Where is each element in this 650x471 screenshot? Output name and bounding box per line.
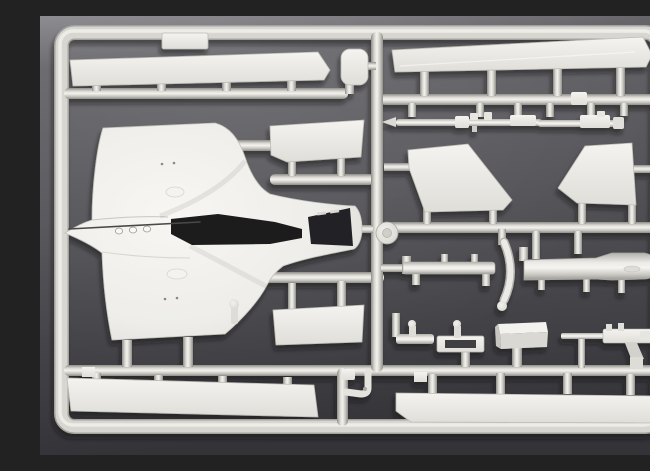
runner-vertical-center [371,32,383,372]
runner-top-left [64,88,348,99]
runner-bottom [64,365,650,376]
pod-part [341,49,368,85]
sprue-photo [40,16,650,455]
flap-panel-lower [273,305,364,345]
wing-strip-bottom-left [67,378,318,417]
equipment-box [495,322,548,349]
small-rect-part-top [162,33,208,49]
pylon-part [403,262,495,274]
wheel-disc [376,222,398,244]
flap-panel-upper [270,120,364,162]
wing-strip-bottom-right [396,393,650,423]
runner-panel [270,174,374,185]
runner-mid-right [380,222,650,233]
